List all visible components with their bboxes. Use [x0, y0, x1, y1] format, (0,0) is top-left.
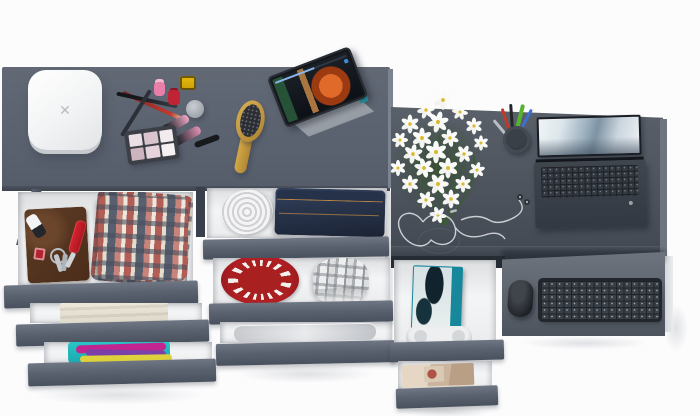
- drawer-left-3-front: [28, 359, 217, 387]
- pedestal-drawer2-front: [396, 385, 499, 409]
- drawer-mid-1-interior: [207, 188, 387, 238]
- laptop-wallpaper: [539, 117, 640, 156]
- makeup-set: [112, 76, 217, 168]
- scene: ✕: [0, 0, 700, 416]
- eyeshadow: [159, 129, 174, 143]
- eyeshadow: [128, 133, 143, 147]
- laptop: [531, 112, 652, 229]
- eyeshadow: [146, 145, 161, 159]
- dresser-divider: [196, 187, 205, 237]
- nail-polish-pink: [154, 82, 165, 96]
- pen-black: [509, 104, 514, 128]
- keyboard: [541, 281, 659, 319]
- book-cover: [412, 266, 452, 329]
- earphones-cable: [395, 170, 545, 270]
- key-fob: [33, 247, 46, 260]
- floor-shadow: [214, 362, 399, 386]
- cup: [503, 126, 530, 153]
- drawer-mid-2-front: [209, 300, 393, 324]
- eyeshadow-palette: [124, 125, 180, 166]
- drawer-mid-1-front: [203, 236, 389, 259]
- laptop-power-dot: [629, 201, 633, 205]
- plaid-shirt: [97, 195, 188, 281]
- beanie-center: [238, 266, 282, 294]
- floor-shadow: [500, 334, 670, 352]
- pen-cup: [497, 110, 535, 158]
- drawer-left-1-interior: [18, 192, 193, 285]
- eyeshadow: [130, 147, 145, 161]
- nail-polish-red: [168, 90, 180, 105]
- laptop-keyboard: [541, 165, 639, 199]
- wireless-charger: ✕: [28, 70, 102, 150]
- magazine-photo: [424, 366, 445, 383]
- belt: [216, 188, 277, 238]
- drawer-mid-2-interior: [213, 258, 390, 304]
- desk-right-edge: [660, 119, 667, 256]
- garment-bag: [234, 323, 376, 342]
- eyeshadow: [144, 131, 159, 145]
- pedestal-drawer2-interior: [398, 361, 492, 389]
- drawer-mid-3-front: [216, 340, 396, 366]
- mouse: [507, 279, 535, 318]
- mascara: [194, 134, 220, 149]
- charger-x-logo: ✕: [59, 102, 71, 119]
- pedestal-drawer-interior: [394, 260, 496, 344]
- cream-jar: [186, 100, 204, 118]
- eyeshadow: [161, 143, 176, 157]
- nail-polish-yellow: [180, 76, 196, 90]
- pedestal-drawer-front: [390, 340, 504, 363]
